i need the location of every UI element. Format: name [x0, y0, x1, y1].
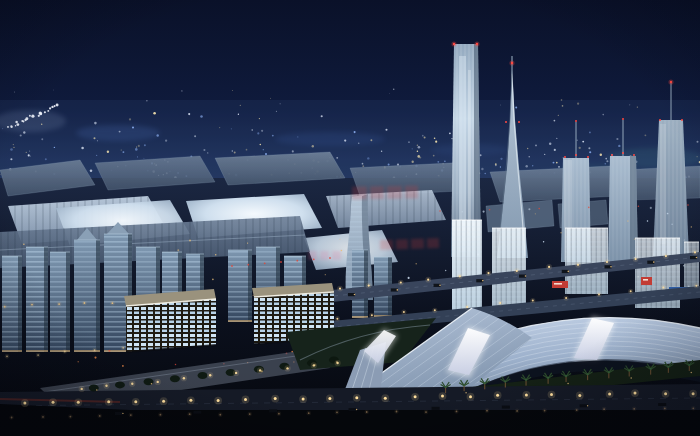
city-night-rendering — [0, 0, 700, 436]
city-render-svg — [0, 0, 700, 436]
vignette — [0, 0, 700, 436]
